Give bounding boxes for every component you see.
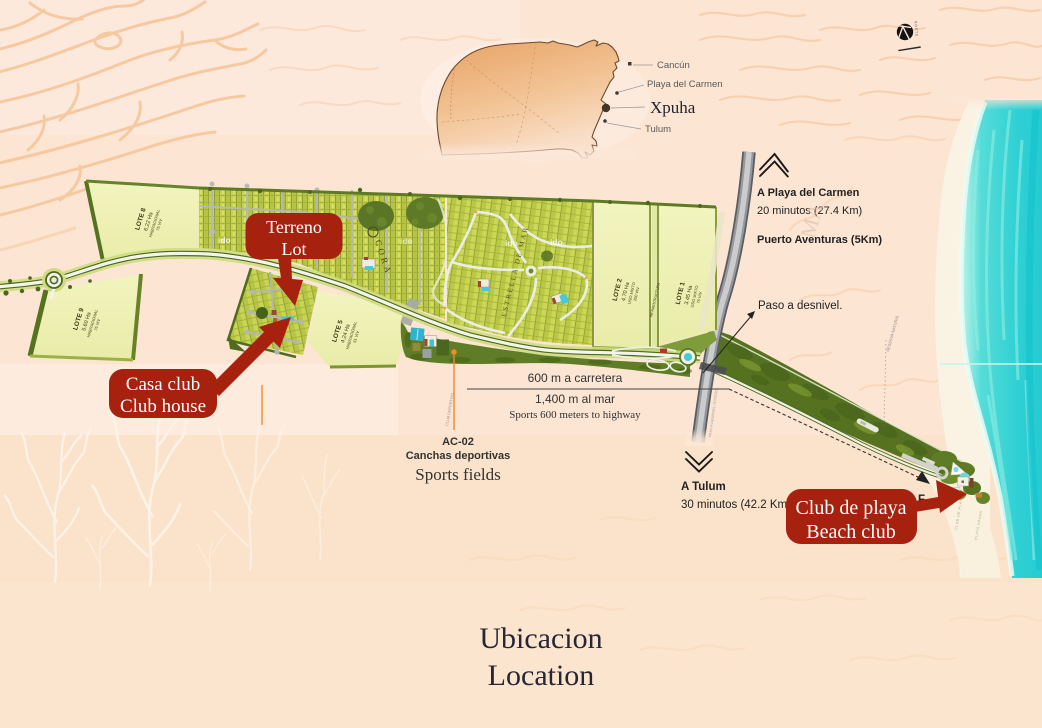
svg-text:A Playa del Carmen: A Playa del Carmen — [757, 187, 860, 199]
svg-text:Playa del Carmen: Playa del Carmen — [647, 79, 723, 90]
svg-text:Xpuha: Xpuha — [650, 98, 696, 117]
svg-text:Cancún: Cancún — [657, 60, 690, 71]
svg-text:AC-02: AC-02 — [442, 436, 474, 448]
svg-text:Ubicacion: Ubicacion — [479, 622, 602, 655]
svg-text:ido: ido — [505, 238, 518, 248]
svg-text:Beach club: Beach club — [806, 521, 895, 543]
svg-text:Tulum: Tulum — [645, 124, 671, 135]
svg-text:Club de playa: Club de playa — [795, 497, 906, 519]
svg-text:1,400 m al mar: 1,400 m al mar — [535, 392, 615, 406]
svg-text:Terreno: Terreno — [266, 217, 322, 237]
svg-text:Paso a desnivel.: Paso a desnivel. — [758, 300, 842, 312]
svg-text:Club house: Club house — [120, 396, 206, 417]
svg-text:30 minutos (42.2 Km): 30 minutos (42.2 Km) — [681, 499, 791, 511]
svg-text:Casa club: Casa club — [126, 374, 200, 395]
svg-text:Sports 600 meters to highway: Sports 600 meters to highway — [509, 409, 641, 421]
svg-text:ido: ido — [400, 236, 413, 246]
svg-text:Lot: Lot — [282, 239, 307, 259]
svg-text:Sports fields: Sports fields — [415, 465, 500, 484]
svg-text:ido: ido — [218, 235, 231, 245]
svg-text:ido: ido — [550, 237, 563, 247]
svg-text:600 m a carretera: 600 m a carretera — [528, 371, 623, 385]
svg-text:Canchas deportivas: Canchas deportivas — [406, 450, 511, 462]
svg-text:A Tulum: A Tulum — [681, 481, 726, 493]
svg-text:Location: Location — [488, 659, 595, 692]
